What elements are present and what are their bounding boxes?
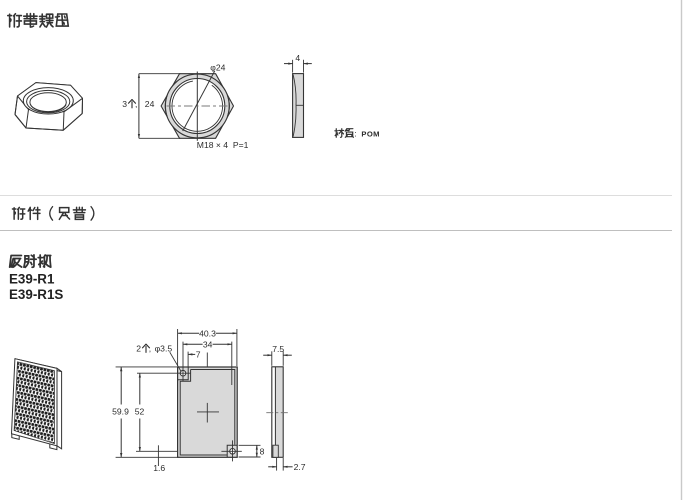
svg-text:2: 2 bbox=[136, 344, 141, 354]
svg-text::: : bbox=[354, 130, 356, 139]
svg-text:POM: POM bbox=[361, 130, 380, 139]
svg-text:M18 × 4 P=1: M18 × 4 P=1 bbox=[197, 140, 249, 150]
svg-text:8: 8 bbox=[260, 446, 265, 456]
svg-text:3: 3 bbox=[122, 99, 127, 109]
svg-text:,: , bbox=[135, 99, 137, 109]
svg-text:φ24: φ24 bbox=[210, 63, 225, 73]
svg-text:E39-R1: E39-R1 bbox=[9, 271, 55, 286]
svg-text:52: 52 bbox=[135, 407, 145, 417]
svg-text:4: 4 bbox=[295, 53, 300, 63]
svg-text:24: 24 bbox=[145, 99, 155, 109]
svg-text:7.5: 7.5 bbox=[272, 344, 284, 354]
svg-text:40.3: 40.3 bbox=[199, 328, 216, 338]
svg-text:2.7: 2.7 bbox=[294, 462, 306, 472]
svg-text:7: 7 bbox=[196, 350, 201, 360]
svg-text:,: , bbox=[149, 344, 151, 354]
svg-text:34: 34 bbox=[203, 339, 213, 349]
svg-text:E39-R1S: E39-R1S bbox=[9, 287, 63, 302]
svg-text:59.9: 59.9 bbox=[112, 407, 129, 417]
svg-text:φ3.5: φ3.5 bbox=[155, 344, 173, 354]
svg-text:1.6: 1.6 bbox=[153, 463, 165, 473]
